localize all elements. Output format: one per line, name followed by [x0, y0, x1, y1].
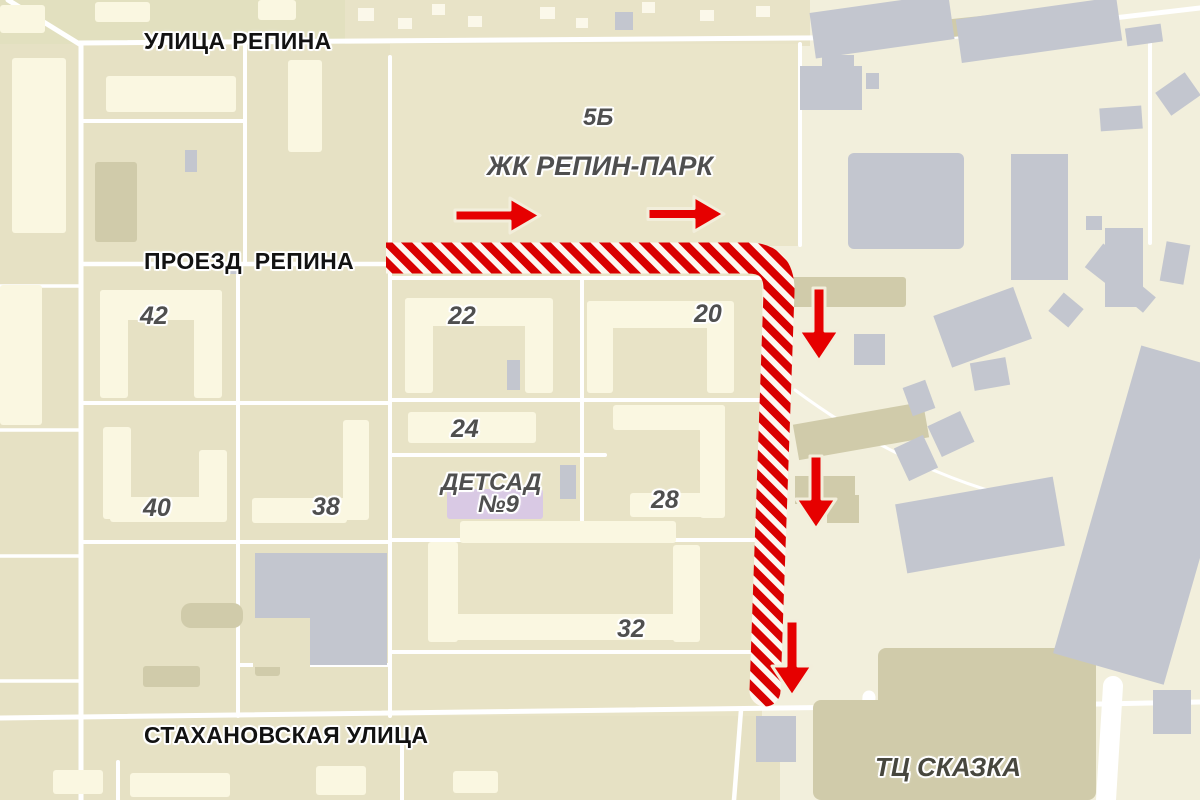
- poi-label-tc-skazka: ТЦ СКАЗКА: [875, 754, 1021, 780]
- street-label-proezd-repina: ПРОЕЗД РЕПИНА: [144, 250, 354, 273]
- city-map: УЛИЦА РЕПИНА ПРОЕЗД РЕПИНА СТАХАНОВСКАЯ …: [0, 0, 1200, 800]
- street-label-ulitsa-repina: УЛИЦА РЕПИНА: [144, 30, 332, 53]
- poi-label-5b: 5Б: [583, 106, 613, 130]
- poi-label-zhk-repin-park: ЖК РЕПИН-ПАРК: [487, 153, 713, 180]
- house-number-24: 24: [451, 417, 479, 442]
- house-number-20: 20: [694, 302, 722, 327]
- house-number-38: 38: [312, 495, 340, 520]
- house-number-42: 42: [140, 304, 168, 329]
- poi-label-detsad-number: №9: [478, 493, 519, 517]
- house-number-22: 22: [448, 304, 476, 329]
- house-number-32: 32: [617, 617, 645, 642]
- street-label-stakhanovskaya: СТАХАНОВСКАЯ УЛИЦА: [144, 724, 428, 747]
- house-number-28: 28: [651, 488, 679, 513]
- road-bottom-right-wide: [1106, 686, 1113, 800]
- house-number-40: 40: [143, 496, 171, 521]
